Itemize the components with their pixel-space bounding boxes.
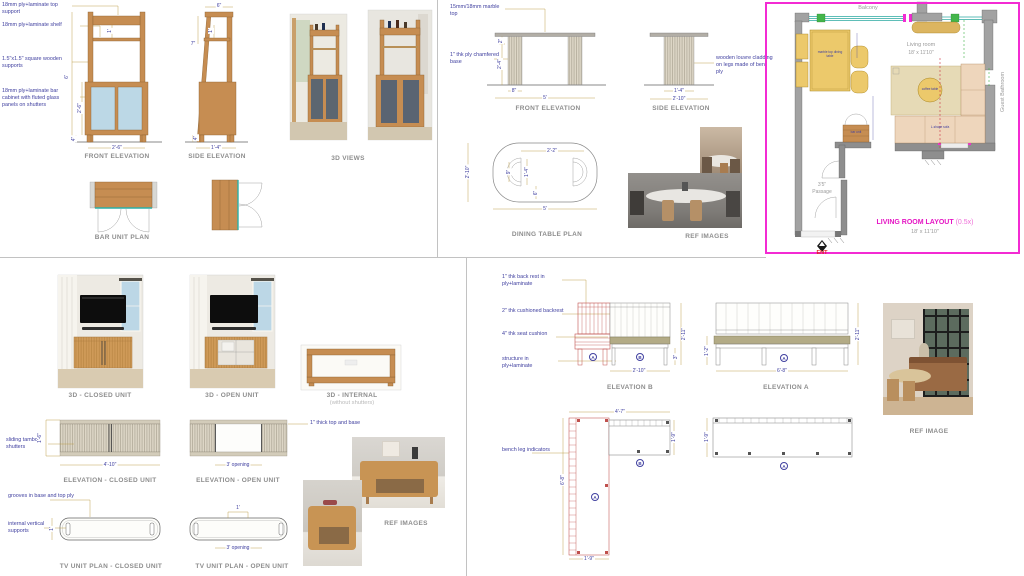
bar-side-dim-top: 6" (216, 3, 223, 9)
bar-3d-view-1 (290, 14, 347, 140)
tv-3d-internal (301, 345, 401, 390)
lr-guest-bathroom: Guest Bathroom (1000, 72, 1006, 112)
dining-side-title: SIDE ELEVATION (652, 105, 709, 112)
photo-chair (730, 159, 740, 173)
bench-note-seat: 4" thk seat cushion (502, 331, 552, 338)
bar-side-dim-slant: 7" (190, 41, 197, 47)
tv-plan-open (190, 512, 287, 548)
lr-annot-dining: marble top dining table (816, 51, 844, 59)
bench-eleva-title: ELEVATION A (763, 384, 809, 391)
bench-elev-b-lines (556, 280, 681, 371)
bar-plan-2 (212, 180, 262, 230)
tv-elev-closed-dim-w: 4'-10" (103, 462, 118, 468)
lr-title-size: 18' x 11'10" (911, 229, 939, 235)
bench-note-backrest: 1" thk back rest in ply+laminate (502, 274, 572, 288)
dining-plan-title: DINING TABLE PLAN (512, 231, 582, 238)
bench-plan-dim-bottom: 1'-9" (583, 556, 595, 562)
bench-eleva-dim-seath: 1'-2" (704, 345, 710, 357)
lr-annot-bar: bar unit (845, 131, 867, 135)
tv-ref-photo-1 (352, 437, 445, 508)
lr-title-scale: (0.5x) (956, 219, 974, 226)
photo-vase (412, 447, 418, 459)
bar-side-dim-shelf: 1' (208, 28, 214, 34)
lr-title: LIVING ROOM LAYOUT (0.5x) (877, 219, 974, 226)
bar-3d-view-2 (368, 10, 432, 140)
bench-elevb-dim-seat: 3" (673, 354, 679, 361)
lr-balcony-label: Balcony (858, 5, 878, 11)
photo-chair (903, 381, 915, 401)
bar-front-dim-leg: 4" (71, 136, 77, 143)
tv-note-topbase: 1" thick top and base (310, 420, 362, 427)
living-room-plan (765, 2, 1022, 256)
bar-note-shelf: 18mm ply+laminate shelf (2, 22, 82, 29)
bar-unit-drawing (0, 0, 437, 257)
photo-table-leg (662, 200, 674, 221)
dining-plan-dim-legdepth: 9" (506, 169, 512, 176)
dining-side-dim-leg: 1'-4" (673, 88, 685, 94)
bench-elevb-marker-b: B (636, 353, 644, 361)
photo-decor (323, 500, 337, 505)
tv-3d-open-title: 3D - OPEN UNIT (205, 392, 259, 399)
tv-note-supports: internal vertical supports (8, 521, 52, 535)
dining-side-dim-width: 2'-10" (672, 96, 687, 102)
bar-front-dim-height: 6' (64, 74, 70, 80)
bench-note-legs: bench leg indicators (502, 447, 552, 454)
photo-frame (382, 441, 400, 457)
lr-passage-label: Passage (812, 189, 831, 195)
tv-3d-internal-title: 3D - INTERNAL (327, 392, 378, 399)
photo-cabinet-shelves (317, 512, 349, 544)
bench-plan-dim-right: 1'-9" (671, 431, 677, 443)
photo-chair (887, 379, 899, 401)
dining-front-elevation-lines (487, 9, 606, 98)
bench-plan-dim-left: 6'-8" (560, 474, 566, 486)
dining-plan-dim-depth: 2'-10" (465, 165, 471, 180)
photo-cabinet-shelves (374, 467, 424, 493)
bar-plan-1 (90, 182, 157, 232)
photo-chair (702, 157, 712, 173)
bench-plana-dim: 1'-9" (704, 431, 710, 443)
bench-note-structure: structure in ply+laminate (502, 356, 556, 370)
photo-cabinet-leg (366, 497, 369, 504)
dining-front-title: FRONT ELEVATION (516, 105, 581, 112)
tv-3d-closed (58, 275, 143, 388)
lr-annot-sofa: L-shape sofa (925, 126, 955, 130)
lr-annot-coffee: coffee table (920, 88, 940, 92)
dining-note-base: 1" thk ply chamfered base (450, 52, 502, 66)
tv-plan-closed-dim: 1' (49, 526, 55, 532)
tv-note-grooves: grooves in base and top ply (8, 493, 74, 500)
tv-plan-open-dim-top: 1' (235, 505, 241, 511)
tv-elev-closed (46, 420, 160, 465)
tv-ref-photo-2 (303, 480, 362, 566)
bench-eleva-dim-h: 2'-11" (855, 327, 861, 341)
bar-side-dim-leg: 4" (193, 135, 199, 142)
lr-room-label: Living room (907, 42, 935, 48)
bar-front-dim-width: 2'-6" (111, 145, 123, 151)
bench-planl-marker-a: A (591, 493, 599, 501)
dining-front-dim-leg-h: 2'-4" (497, 58, 503, 70)
bench-ref-title: REF IMAGE (910, 428, 949, 435)
tv-elev-open-title: ELEVATION - OPEN UNIT (196, 477, 280, 484)
bench-eleva-marker-a: A (780, 354, 788, 362)
bench-elevb-marker-a: A (589, 353, 597, 361)
tv-plan-closed (44, 500, 160, 540)
dining-ref-title: REF IMAGES (685, 233, 728, 240)
bench-plan-dim-top: 4'-7" (614, 409, 626, 415)
photo-vase (682, 182, 688, 191)
dining-front-dim-top: 2" (498, 38, 504, 45)
lr-room-size: 18' x 11'10" (908, 50, 933, 56)
dining-plan-dim-width: 5' (542, 206, 548, 212)
drawing-sheet: 18mm ply+laminate top support 18mm ply+l… (0, 0, 1024, 576)
bar-side-dim-width: 1'-4" (210, 145, 222, 151)
dining-ref-photo-2 (628, 173, 742, 228)
bench-plana-marker-a: A (780, 462, 788, 470)
bench-eleva-dim-w: 6'-8" (776, 368, 788, 374)
tv-ref-title: REF IMAGES (384, 520, 427, 527)
bar-note-cabinet: 18mm ply+laminate bar cabinet with flute… (2, 88, 74, 109)
bar-note-top-support: 18mm ply+laminate top support (2, 2, 66, 16)
tv-plan-open-title: TV UNIT PLAN - OPEN UNIT (195, 563, 288, 570)
bench-plan-a-lines (707, 418, 852, 457)
tv-plan-closed-title: TV UNIT PLAN - CLOSED UNIT (60, 563, 162, 570)
photo-tabletop (646, 189, 726, 203)
lr-passage-size: 3'5" (818, 182, 826, 188)
dining-front-dim-width: 5' (542, 95, 548, 101)
bar-front-elevation-lines (72, 6, 162, 148)
lr-title-main: LIVING ROOM LAYOUT (877, 219, 954, 226)
tv-elev-open-dim: 3' opening (226, 462, 251, 468)
photo-cabinet-leg (430, 497, 433, 504)
bar-front-title: FRONT ELEVATION (85, 153, 150, 160)
bar-front-dim-shelf: 1' (107, 28, 113, 34)
bench-plan-l-lines (532, 412, 674, 559)
bench-elevb-title: ELEVATION B (607, 384, 653, 391)
dining-front-dim-leg-w: 8" (511, 88, 518, 94)
bench-ref-photo (883, 303, 973, 415)
tv-elev-closed-dim-h: 1'-6" (37, 432, 43, 444)
tv-elev-open (190, 420, 308, 465)
tv-3d-open (190, 275, 275, 388)
bar-side-title: SIDE ELEVATION (188, 153, 245, 160)
photo-wall-art (891, 319, 915, 339)
bar-side-elevation-lines (185, 7, 248, 148)
tv-unit-drawing (0, 257, 466, 576)
lr-entry-label: ENT (817, 250, 828, 256)
tv-plan-open-dim: 3' opening (226, 545, 251, 551)
dining-plan-dim-offset: 6" (533, 190, 539, 197)
bench-elevb-dim-h: 2'-11" (681, 327, 687, 341)
bar-front-dim-cabinet: 2'-6" (77, 102, 83, 114)
bench-planl-marker-b: B (636, 459, 644, 467)
photo-chair (630, 191, 644, 215)
photo-chair (726, 191, 740, 217)
photo-table-leg (690, 200, 702, 221)
tv-3d-closed-title: 3D - CLOSED UNIT (69, 392, 132, 399)
tv-elev-closed-title: ELEVATION - CLOSED UNIT (64, 477, 157, 484)
dining-plan-dim-span: 2'-2" (546, 148, 558, 154)
bar-plan-title: BAR UNIT PLAN (95, 234, 149, 241)
bar-3d-title: 3D VIEWS (331, 155, 364, 162)
bench-elevb-dim-w: 2'-10" (632, 368, 647, 374)
bench-note-cushion: 2" thk cushioned backrest (502, 308, 564, 315)
photo-plant (919, 343, 929, 357)
bar-note-supports: 1.5"x1.5" square wooden supports (2, 56, 66, 70)
dining-plan-lines (468, 143, 597, 209)
dining-plan-dim-gap: 1'-4" (524, 166, 530, 178)
dining-ref-photo-1 (700, 127, 742, 178)
dining-note-marble: 15mm/18mm marble top (450, 4, 506, 18)
tv-3d-internal-sub: (without shutters) (330, 400, 374, 406)
